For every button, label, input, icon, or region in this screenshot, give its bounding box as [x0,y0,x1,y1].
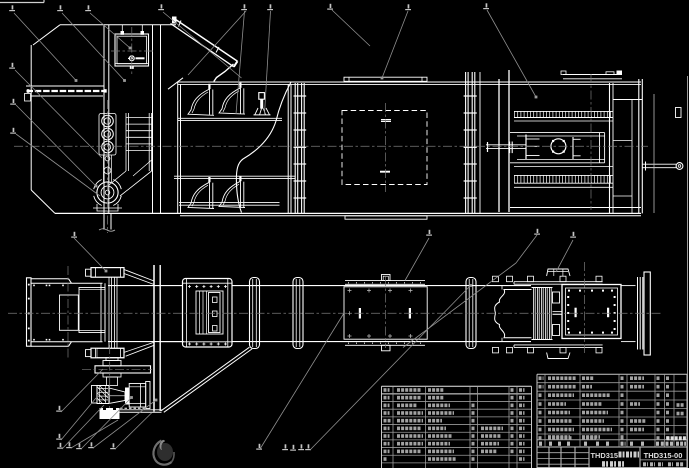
svg-text:THD315: THD315 [591,451,619,460]
svg-text:THD315-00: THD315-00 [644,451,683,460]
